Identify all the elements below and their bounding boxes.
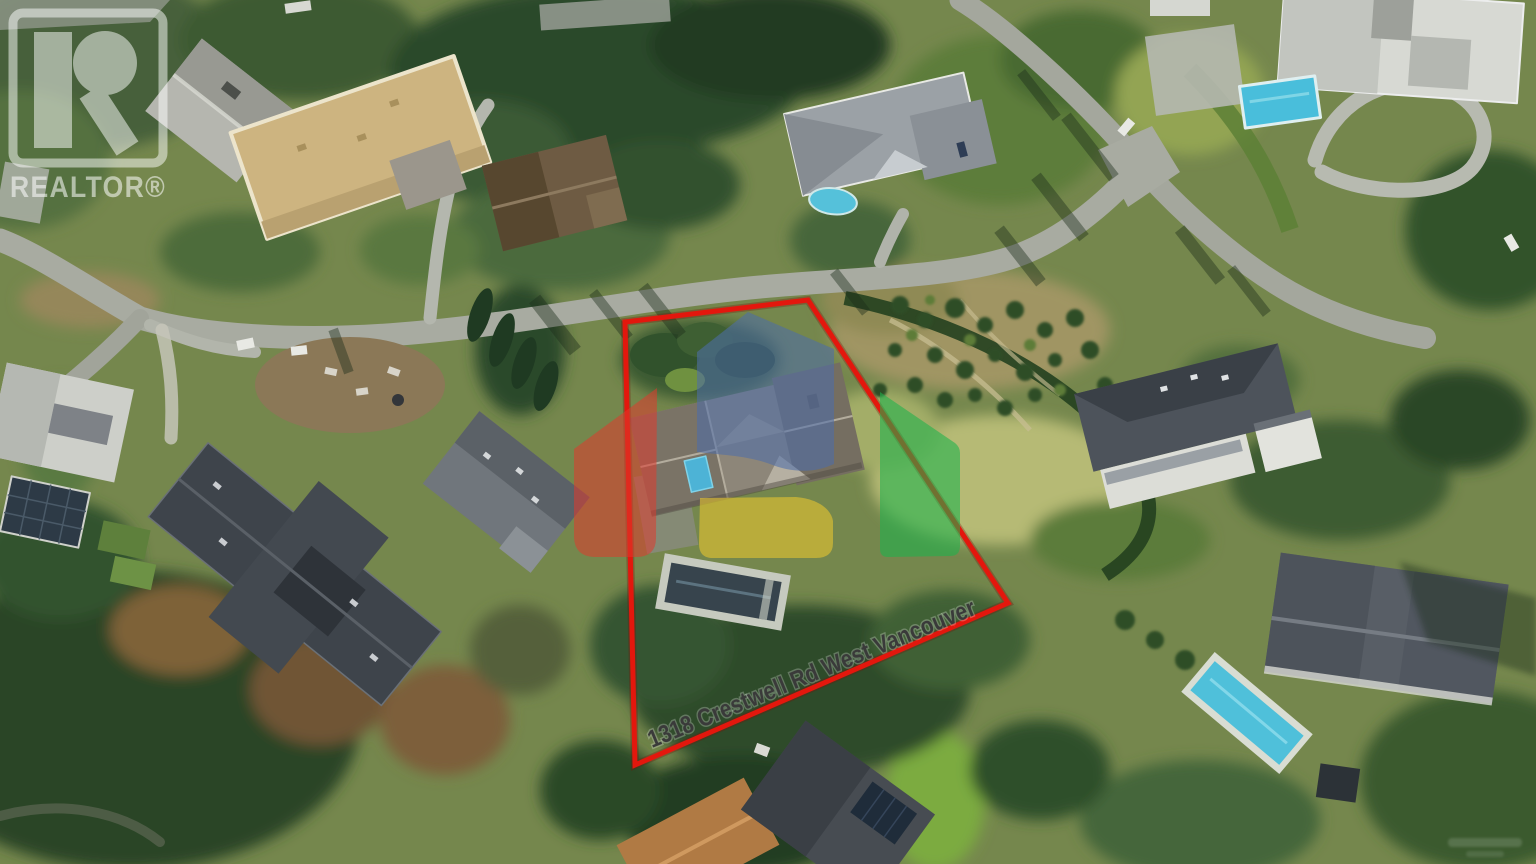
construction-site	[255, 337, 445, 433]
aerial-photo: 1318 Crestwell Rd West Vancouver REALTOR…	[0, 0, 1536, 864]
aerial-photo-stage: 1318 Crestwell Rd West Vancouver REALTOR…	[0, 0, 1536, 864]
overlay-yellow-house	[699, 497, 833, 558]
realtor-wordmark: REALTOR®	[10, 171, 166, 204]
pool-top-right	[1239, 76, 1320, 128]
top-edge-roof	[1150, 0, 1210, 16]
